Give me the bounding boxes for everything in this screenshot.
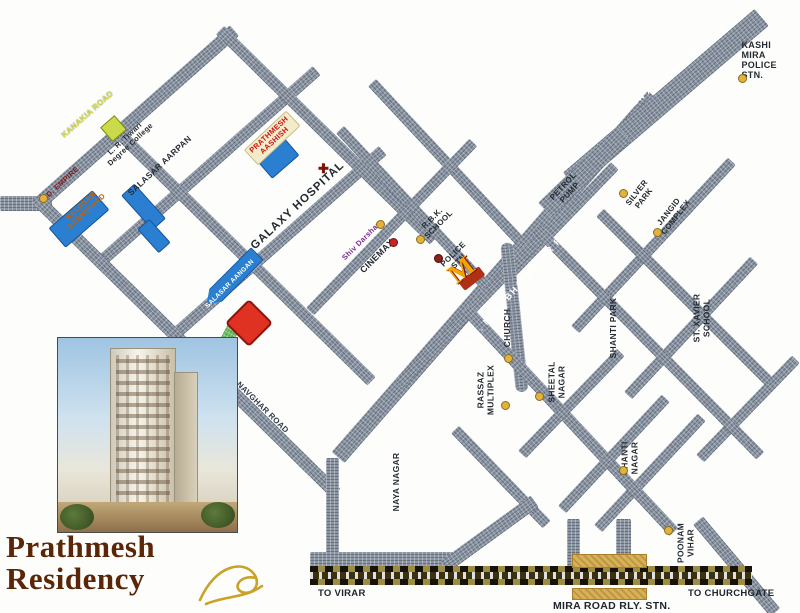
- shanti-park-label: SHANTI PARK: [609, 298, 619, 359]
- rail-side-road: [310, 552, 458, 567]
- sheetal-nagar-marker: [535, 392, 544, 401]
- church-marker: [504, 354, 513, 363]
- rassaz-multiplex-marker: [501, 401, 510, 410]
- brand-line2: Residency: [6, 563, 155, 595]
- location-map: KANAKIA ROADNAVGHAR ROAD45.6 M. MIRA BHA…: [0, 0, 800, 613]
- hospital-cross-icon: ✚: [318, 161, 329, 177]
- kd-empire-marker: [39, 194, 48, 203]
- salasar-building-3: [137, 219, 170, 253]
- poonam-vihar-marker: [664, 526, 673, 535]
- residency-tower: [110, 348, 176, 522]
- building-photo: [57, 337, 238, 533]
- residency-tower-wing: [174, 372, 198, 522]
- tower-windows: [116, 355, 170, 517]
- railway-track-middle: [310, 572, 752, 579]
- to-churchgate-label: TO CHURCHGATE: [688, 588, 774, 599]
- station-platform-top: [572, 554, 647, 568]
- brand-title: Prathmesh Residency: [6, 531, 155, 594]
- to-virar-label: TO VIRAR: [318, 588, 366, 599]
- jangid-street: [596, 209, 773, 386]
- shanti-nagar-street: [558, 395, 670, 514]
- naya-nagar-label: NAYA NAGAR: [392, 453, 402, 512]
- galaxy-hospital-label: GALAXY HOSPITAL: [249, 159, 348, 252]
- police-stn-marker: [434, 254, 443, 263]
- brand-line1: Prathmesh: [6, 531, 155, 563]
- station-curve-road: [440, 496, 539, 573]
- shanti-nagar-marker: [619, 466, 628, 475]
- jangid-complex-marker: [653, 228, 662, 237]
- kashi-mira-police-label: KASHI MIRA POLICE STN.: [742, 40, 781, 80]
- poonam-vihar-label: POONAM VIHAR: [676, 523, 695, 563]
- sheetal-east-street: [518, 349, 625, 459]
- shiv-darshan-marker: [376, 220, 385, 229]
- st-xavier-school-label: ST. XAVIER SCHOOL: [692, 294, 711, 343]
- station-name-label: MIRA ROAD RLY. STN.: [553, 600, 671, 612]
- silver-park-label: SILVER PARK: [625, 179, 658, 214]
- silver-park-marker: [619, 189, 628, 198]
- railway-track-bottom: [310, 579, 752, 585]
- tree: [201, 502, 235, 528]
- sheetal-nagar-label: SHEETAL NAGAR: [547, 361, 566, 402]
- rassaz-multiplex-label: RASSAZ MULTIPLEX: [476, 365, 495, 415]
- cinemax-marker: [389, 238, 398, 247]
- tree: [60, 504, 94, 530]
- church-label: CHURCH: [503, 309, 513, 348]
- railway-line: [310, 566, 752, 585]
- station-platform-bottom: [572, 588, 647, 600]
- kashi-mira-police-marker: [738, 74, 747, 83]
- flourish-icon: [196, 556, 268, 612]
- rbk-school-marker: [416, 235, 425, 244]
- station-approach-vert: [326, 458, 339, 558]
